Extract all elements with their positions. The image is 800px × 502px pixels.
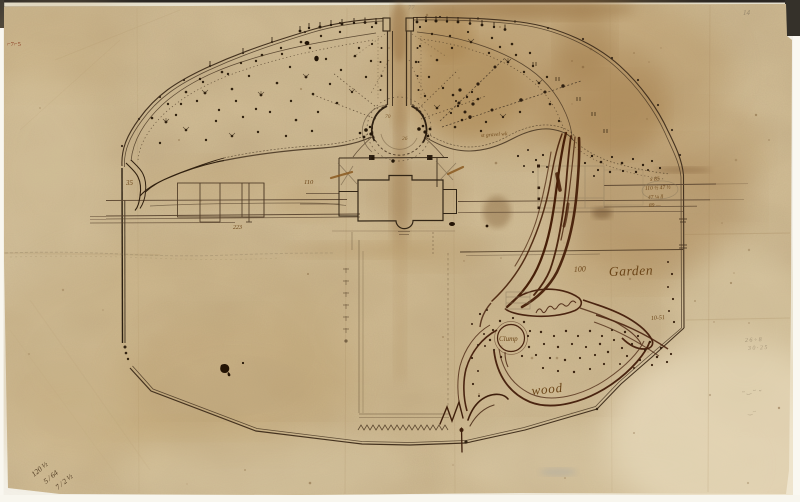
svg-text:100: 100: [574, 264, 587, 274]
svg-text:Garden: Garden: [609, 262, 654, 279]
svg-text:26: 26: [402, 136, 408, 142]
svg-text:70: 70: [385, 114, 391, 120]
svg-text:⌐7⌐5: ⌐7⌐5: [7, 41, 21, 48]
svg-text:Clump: Clump: [499, 335, 518, 343]
svg-text:35: 35: [125, 179, 134, 187]
svg-text:89 —: 89 —: [649, 202, 661, 209]
svg-text:77: 77: [408, 5, 415, 12]
svg-text:‿~: ‿~: [747, 409, 757, 416]
svg-text:10-51: 10-51: [651, 315, 665, 322]
svg-text:x 85: x 85: [649, 176, 660, 183]
svg-text:14: 14: [743, 9, 751, 17]
svg-text:110: 110: [304, 179, 314, 186]
svg-text:47 ¼ ll: 47 ¼ ll: [648, 193, 664, 201]
svg-text:2 6 ÷ 8: 2 6 ÷ 8: [745, 337, 762, 344]
svg-text:3 0 ∙ 2 5: 3 0 ∙ 2 5: [747, 345, 768, 352]
svg-text:110 ½ 47 ½: 110 ½ 47 ½: [645, 184, 671, 192]
svg-text:223: 223: [233, 225, 242, 231]
